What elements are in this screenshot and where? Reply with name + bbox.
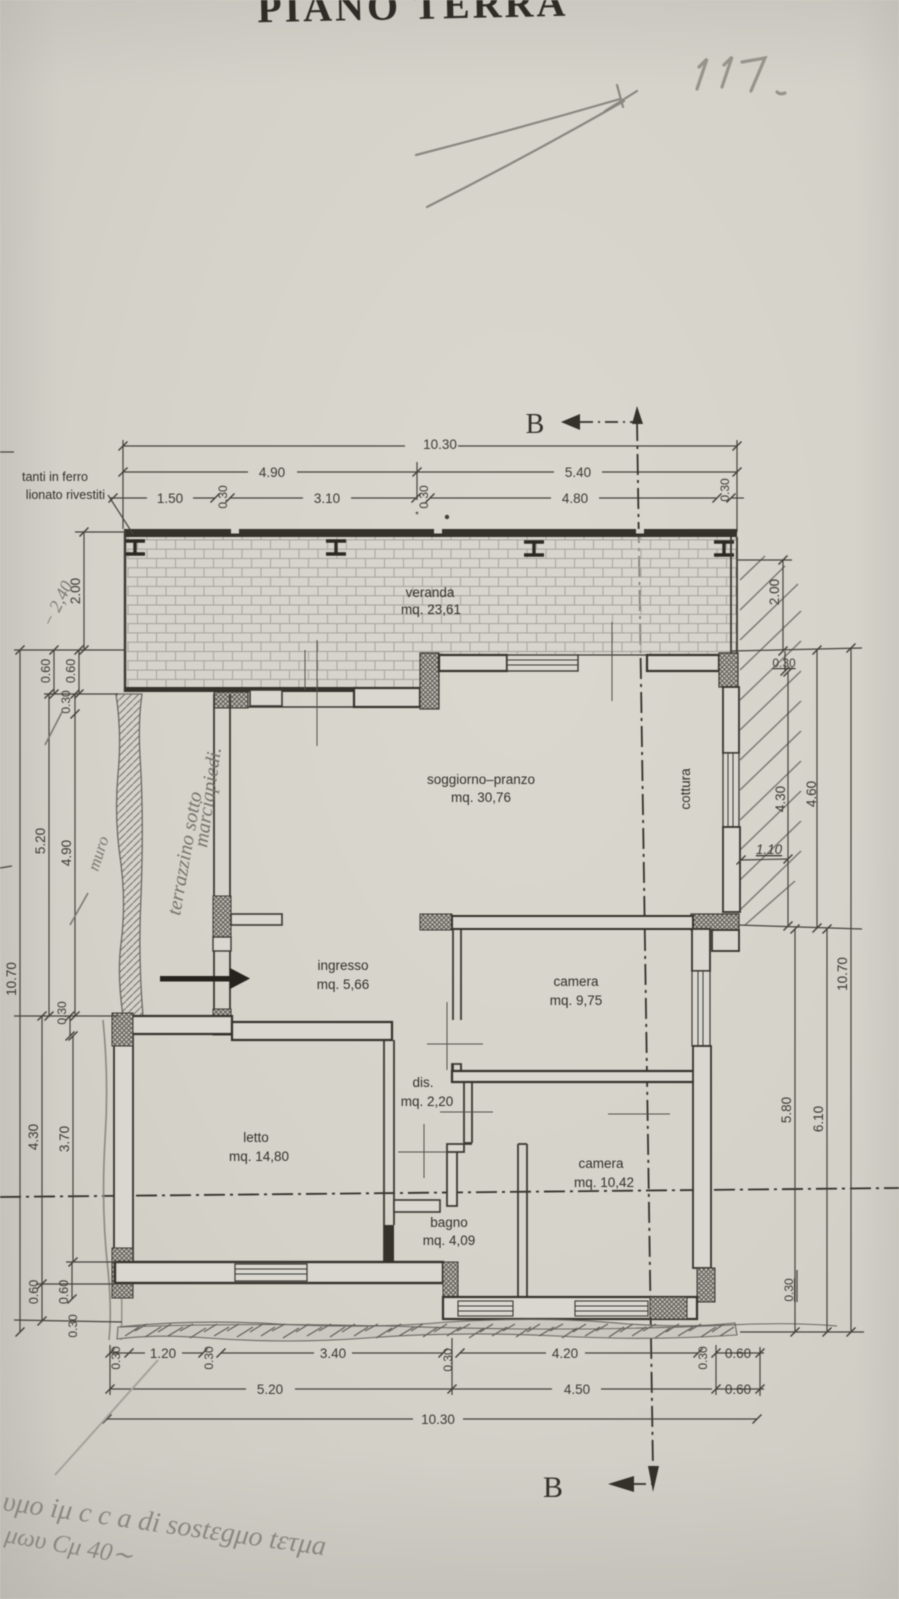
svg-text:B: B xyxy=(543,1471,563,1504)
svg-text:5.20: 5.20 xyxy=(33,828,48,854)
svg-text:2.00: 2.00 xyxy=(767,579,782,605)
svg-text:mq. 30,76: mq. 30,76 xyxy=(451,790,511,805)
svg-text:0.60: 0.60 xyxy=(725,1382,751,1397)
svg-text:4.90: 4.90 xyxy=(259,465,285,480)
svg-text:bagno: bagno xyxy=(430,1215,468,1230)
svg-text:camera: camera xyxy=(553,974,599,989)
svg-text:0.30: 0.30 xyxy=(66,1314,80,1338)
svg-text:4.30: 4.30 xyxy=(26,1124,41,1150)
svg-text:4.80: 4.80 xyxy=(562,491,588,506)
svg-text:lionato rivestiti: lionato rivestiti xyxy=(26,488,105,502)
svg-text:dis.: dis. xyxy=(412,1075,433,1090)
svg-text:0.30: 0.30 xyxy=(782,1278,796,1302)
svg-text:0.60: 0.60 xyxy=(27,1280,41,1304)
svg-text:6.10: 6.10 xyxy=(811,1106,826,1132)
svg-text:mq. 14,80: mq. 14,80 xyxy=(229,1149,289,1164)
svg-text:3.10: 3.10 xyxy=(314,491,340,506)
svg-text:0.60: 0.60 xyxy=(64,659,78,683)
svg-text:0.30: 0.30 xyxy=(772,656,796,670)
svg-text:0.30: 0.30 xyxy=(718,478,732,502)
svg-text:10.70: 10.70 xyxy=(835,957,850,991)
svg-text:0.60: 0.60 xyxy=(39,659,53,683)
svg-text:1.50: 1.50 xyxy=(157,491,183,506)
svg-text:0.30: 0.30 xyxy=(441,1348,455,1372)
svg-text:0.30: 0.30 xyxy=(109,1346,123,1370)
svg-text:4.50: 4.50 xyxy=(564,1382,590,1397)
svg-text:soggiorno–pranzo: soggiorno–pranzo xyxy=(427,772,535,787)
svg-text:5.80: 5.80 xyxy=(779,1097,794,1123)
svg-text:mq. 9,75: mq. 9,75 xyxy=(550,993,603,1008)
svg-text:1.10: 1.10 xyxy=(756,842,783,857)
svg-text:10.30: 10.30 xyxy=(421,1412,455,1427)
svg-text:0.60: 0.60 xyxy=(725,1346,751,1361)
svg-text:5.40: 5.40 xyxy=(565,465,591,480)
svg-text:0.30: 0.30 xyxy=(417,485,431,509)
svg-text:10.30: 10.30 xyxy=(423,437,457,452)
svg-text:mq. 4,09: mq. 4,09 xyxy=(423,1233,476,1248)
svg-text:tanti in ferro: tanti in ferro xyxy=(22,470,88,484)
svg-text:0.30: 0.30 xyxy=(55,1001,69,1025)
svg-text:0.60: 0.60 xyxy=(57,1280,71,1304)
svg-text:4.90: 4.90 xyxy=(59,840,74,866)
svg-text:4.20: 4.20 xyxy=(552,1346,578,1361)
svg-text:0.30: 0.30 xyxy=(202,1346,216,1370)
svg-text:mq. 5,66: mq. 5,66 xyxy=(317,977,370,992)
svg-text:0.30: 0.30 xyxy=(216,485,230,509)
svg-text:1.20: 1.20 xyxy=(150,1346,176,1361)
svg-text:veranda: veranda xyxy=(406,585,455,600)
svg-text:10.70: 10.70 xyxy=(4,962,19,996)
svg-text:4.60: 4.60 xyxy=(804,781,819,807)
svg-text:0.30: 0.30 xyxy=(696,1346,710,1370)
svg-text:ingresso: ingresso xyxy=(317,958,368,973)
svg-text:0.30: 0.30 xyxy=(59,690,73,714)
svg-text:5.20: 5.20 xyxy=(257,1382,283,1397)
svg-text:4.30: 4.30 xyxy=(773,786,788,812)
svg-text:3.70: 3.70 xyxy=(57,1126,72,1152)
svg-text:camera: camera xyxy=(578,1156,624,1171)
svg-text:3.40: 3.40 xyxy=(320,1346,346,1361)
svg-text:mq. 10,42: mq. 10,42 xyxy=(574,1175,634,1190)
svg-text:B: B xyxy=(526,409,545,440)
svg-text:mq. 23,61: mq. 23,61 xyxy=(401,602,461,617)
svg-text:mq. 2,20: mq. 2,20 xyxy=(401,1094,454,1109)
svg-text:letto: letto xyxy=(243,1130,269,1145)
svg-text:cottura: cottura xyxy=(678,768,693,810)
